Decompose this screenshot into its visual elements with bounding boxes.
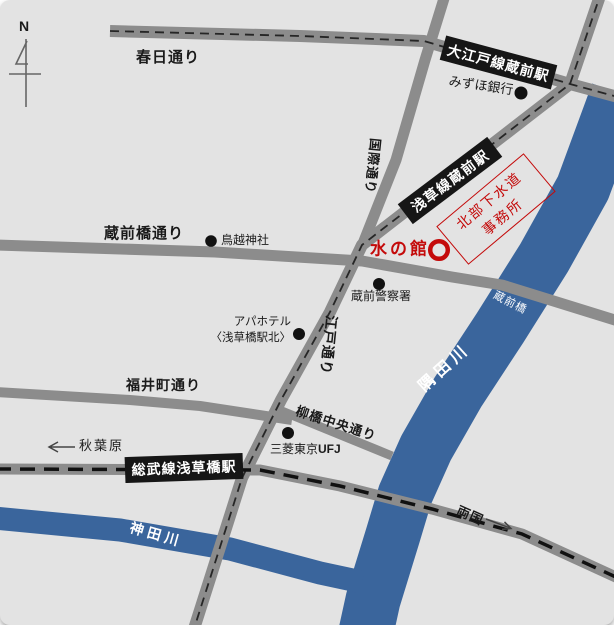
apa-hotel-line2: 〈浅草橋駅北〉 bbox=[205, 330, 291, 346]
mizuho-bank-dot bbox=[515, 87, 528, 100]
compass-north-label: N bbox=[19, 19, 29, 34]
direction-label-akihabara: 秋葉原 bbox=[79, 439, 124, 453]
mitsubishi-ufj-kanji: 三菱東京 bbox=[270, 442, 318, 456]
compass-needle-icon bbox=[9, 39, 41, 107]
mizunoyakata-marker-icon bbox=[430, 241, 448, 259]
station-label-sobu-asakusabashi: 総武線浅草橋駅 bbox=[131, 456, 237, 480]
landmark-label-torigoe-shrine: 鳥越神社 bbox=[221, 234, 269, 247]
akihabara-arrow-icon bbox=[49, 442, 75, 452]
street-label-fukuimachi-dori: 福井町通り bbox=[126, 378, 201, 393]
mitsubishi-ufj-dot bbox=[282, 427, 294, 439]
kanda-river bbox=[0, 518, 362, 582]
street-label-kasuga-dori: 春日通り bbox=[136, 50, 200, 67]
destination-label-mizunoyakata: 水の館 bbox=[370, 241, 430, 260]
apa-hotel-dot bbox=[293, 328, 305, 340]
landmark-label-mitsubishi-ufj: 三菱東京UFJ bbox=[270, 443, 341, 456]
access-map: N 春日通り 蔵前橋通り 国際通り 江戸通り 福井町通り 柳橋中央通り 隅田川 … bbox=[0, 0, 614, 625]
street-label-kuramaebashi-dori: 蔵前橋通り bbox=[104, 226, 184, 243]
station-box-sobu-asakusabashi: 総武線浅草橋駅 bbox=[125, 453, 244, 483]
torigoe-shrine-dot bbox=[205, 235, 217, 247]
fukuimachi-dori-road bbox=[0, 392, 292, 420]
landmark-label-kuramae-police: 蔵前警察署 bbox=[351, 290, 411, 303]
apa-hotel-line1: アパホテル bbox=[205, 314, 291, 330]
landmark-label-apa-hotel: アパホテル 〈浅草橋駅北〉 bbox=[205, 314, 291, 346]
mitsubishi-ufj-latin: UFJ bbox=[318, 442, 341, 456]
sumida-river bbox=[366, 93, 614, 625]
